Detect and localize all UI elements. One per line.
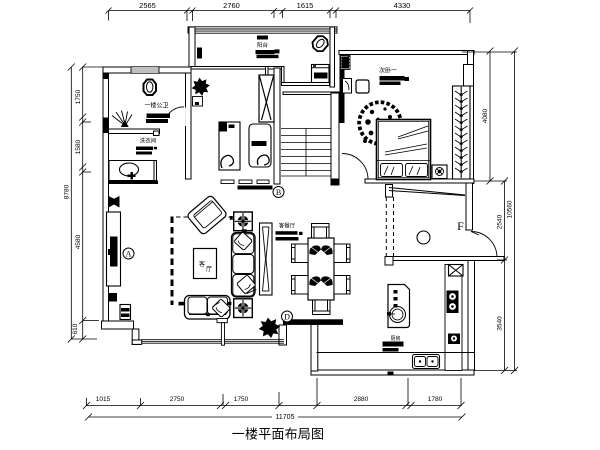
svg-text:2540: 2540 (497, 214, 504, 229)
svg-text:1580: 1580 (75, 139, 82, 154)
svg-text:D: D (284, 312, 290, 321)
svg-text:4080: 4080 (482, 108, 489, 123)
svg-text:一楼平面布局图: 一楼平面布局图 (232, 427, 324, 442)
svg-text:客: 客 (199, 260, 205, 268)
svg-text:1780: 1780 (428, 396, 443, 403)
svg-text:B: B (276, 188, 281, 197)
svg-text:1750: 1750 (75, 89, 82, 104)
svg-text:2750: 2750 (170, 396, 185, 403)
svg-text:4580: 4580 (75, 234, 82, 249)
svg-text:洗衣间: 洗衣间 (140, 137, 157, 145)
svg-text:11705: 11705 (276, 414, 295, 421)
svg-text:4330: 4330 (394, 1, 411, 10)
svg-text:8780: 8780 (64, 184, 71, 199)
svg-text:厅: 厅 (206, 266, 212, 273)
svg-text:10560: 10560 (507, 200, 514, 218)
svg-text:F: F (457, 219, 464, 233)
svg-text:厨房: 厨房 (390, 335, 400, 342)
svg-text:2565: 2565 (139, 1, 156, 10)
svg-text:2880: 2880 (354, 396, 369, 403)
svg-text:1615: 1615 (297, 1, 314, 10)
svg-text:客餐厅: 客餐厅 (279, 222, 296, 230)
svg-text:2760: 2760 (223, 1, 240, 10)
svg-text:次卧一: 次卧一 (379, 67, 397, 75)
svg-text:阳台: 阳台 (257, 41, 269, 49)
svg-text:1015: 1015 (96, 396, 111, 403)
svg-text:一楼公卫: 一楼公卫 (144, 102, 168, 110)
svg-text:3540: 3540 (497, 316, 504, 331)
svg-text:1750: 1750 (234, 396, 249, 403)
svg-text:610: 610 (72, 323, 79, 334)
svg-text:A: A (126, 249, 132, 258)
